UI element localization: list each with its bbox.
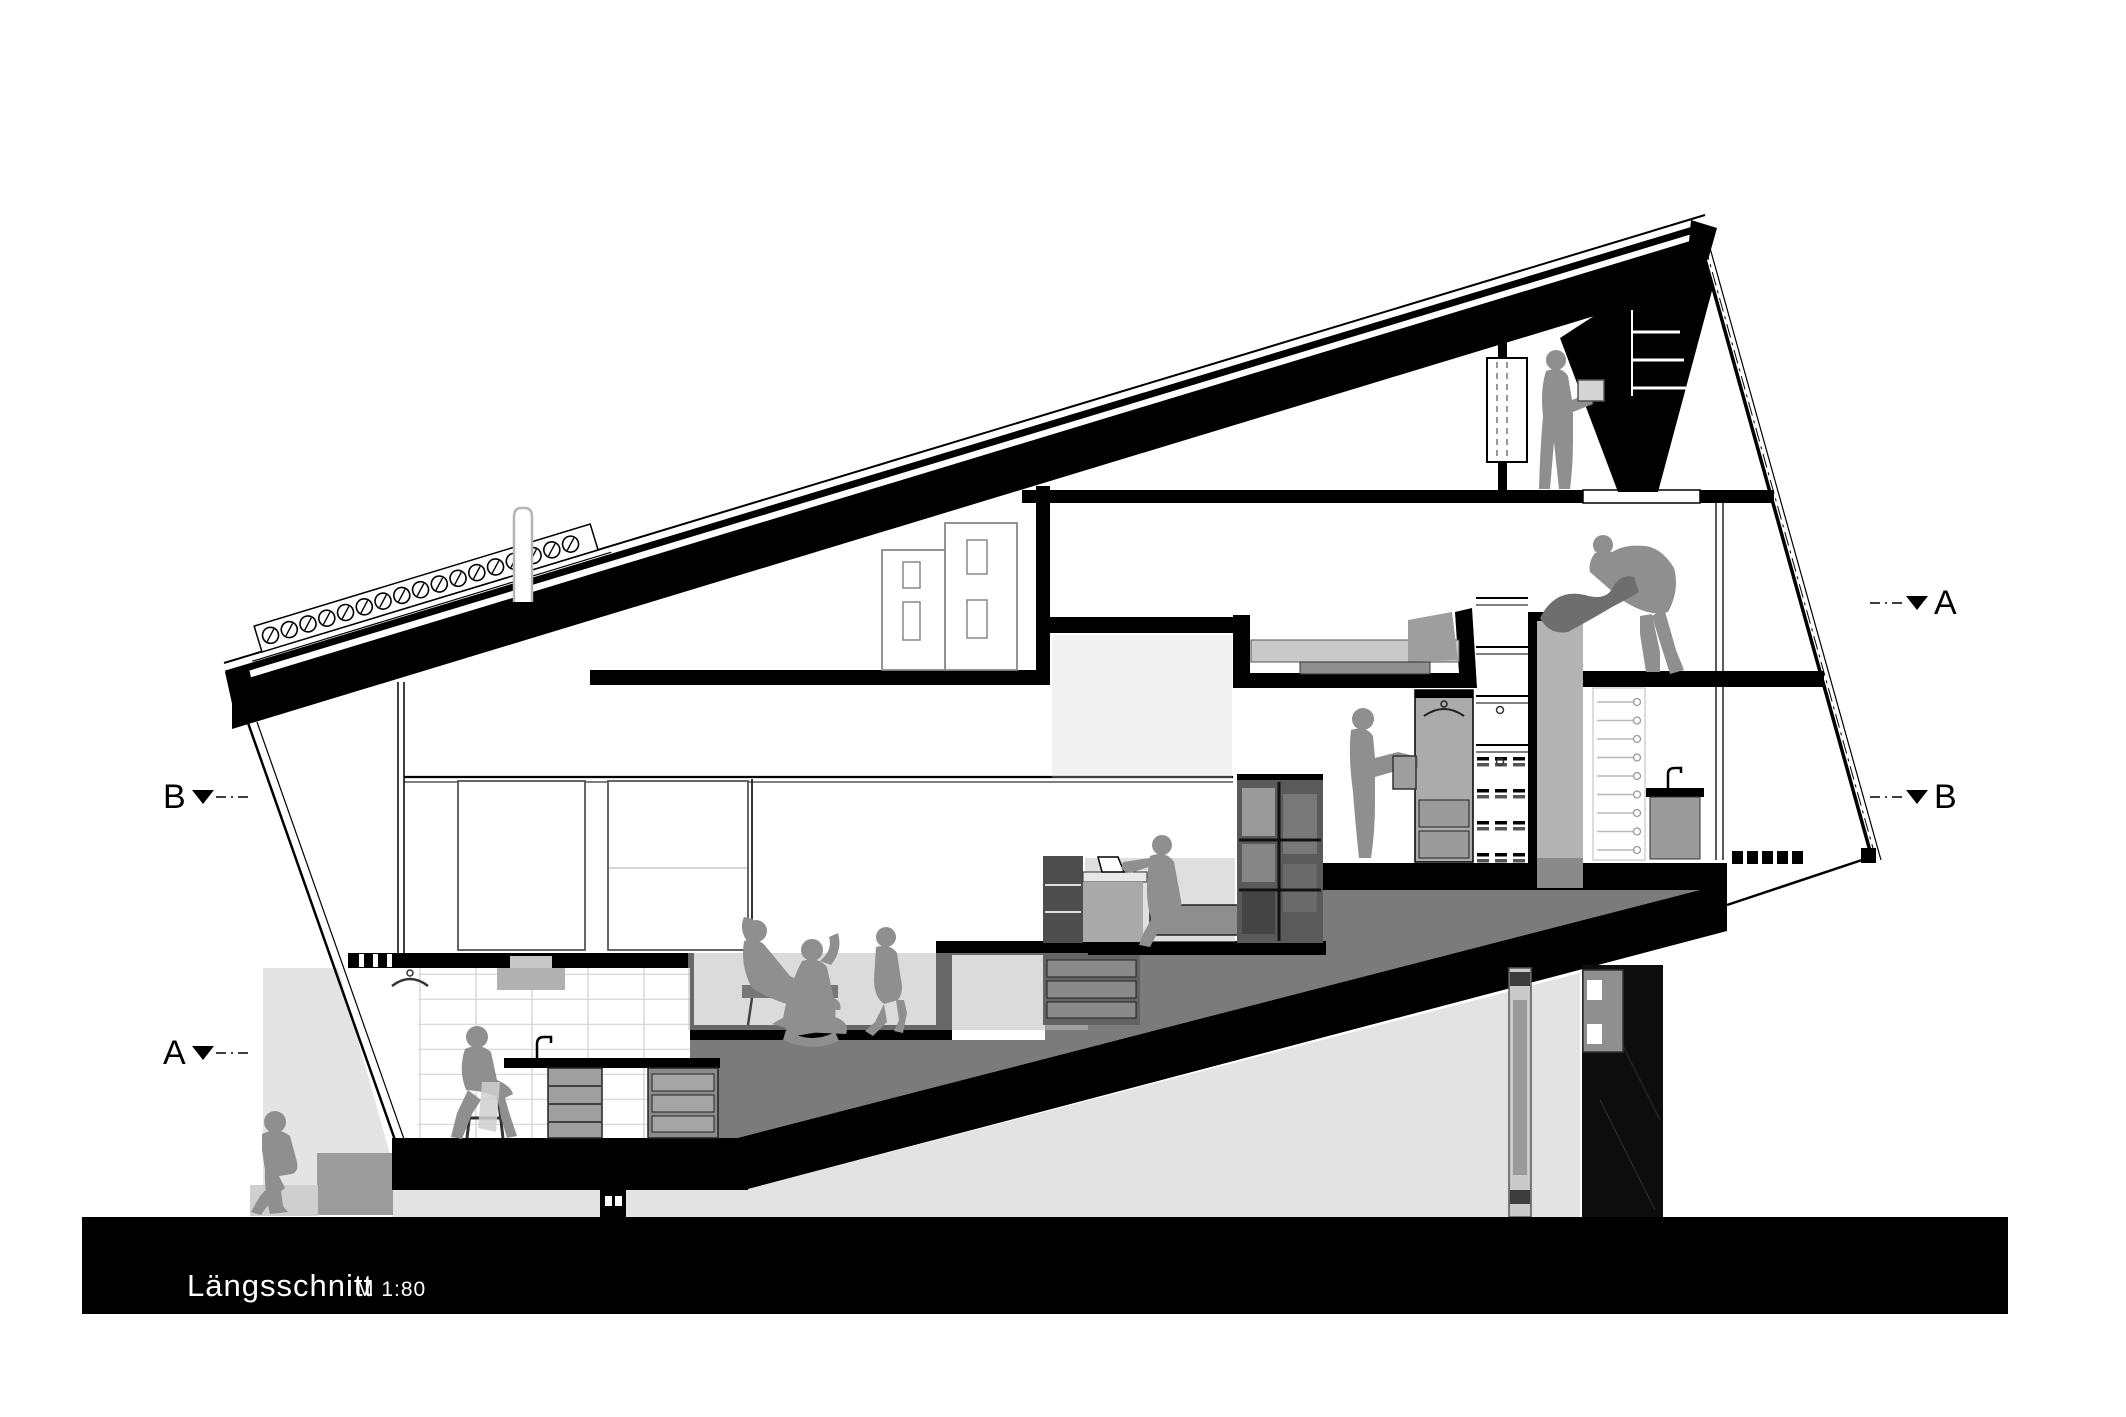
marker-label: A [1934, 584, 1957, 622]
drawer-front [652, 1074, 714, 1091]
interior-post-left [398, 682, 404, 953]
sliding-panel [458, 781, 585, 950]
bed-drawer [1300, 662, 1430, 674]
void-beam [1050, 617, 1233, 633]
marker-arrow-icon [192, 1046, 214, 1060]
kitchen-cabinet-a [548, 1068, 602, 1138]
sliding-panel [608, 781, 748, 950]
drawer-front [1047, 981, 1136, 998]
foundation-pier [600, 1190, 626, 1217]
cabinet-handle [903, 602, 920, 640]
attic-post-lower [1498, 462, 1507, 490]
extractor-hood-top [510, 956, 552, 968]
chimney [514, 508, 532, 602]
bedroom-floor-slab [1548, 671, 1824, 687]
marker-right-a: A [1870, 584, 1957, 622]
wall-shelving-unit [1237, 774, 1323, 943]
desk-shelf-unit [1043, 856, 1083, 943]
marker-label: B [1934, 778, 1957, 816]
void-glass-tint [1052, 635, 1232, 779]
kitchen-base-slab [392, 1138, 748, 1190]
loft-wall [1036, 486, 1050, 685]
closet-base [1537, 858, 1583, 888]
vanity-counter [1646, 788, 1704, 797]
tall-shelf [1593, 688, 1645, 860]
right-facade-dashdot [1705, 246, 1876, 859]
sliding-panels [458, 779, 752, 950]
upper-slab-end-block [1700, 863, 1727, 908]
pier-detail [615, 1196, 622, 1206]
door-glass [1513, 1000, 1527, 1175]
bed-platform [1251, 612, 1459, 674]
outdoor-step-upper [317, 1153, 393, 1215]
vanity-cabinet [1650, 797, 1700, 859]
bed-floor-slab [1233, 673, 1460, 688]
marker-arrow-icon [192, 790, 214, 804]
drawer-front [652, 1116, 714, 1132]
extractor-hood [497, 968, 565, 990]
marker-label: A [163, 1034, 186, 1072]
drawing-scale: M 1:80 [356, 1278, 426, 1301]
figure-person-cross-legged [783, 933, 839, 1047]
bed-backrest [1408, 612, 1458, 662]
hanger-hook-icon [407, 970, 413, 976]
right-glazed-facade-inner [1710, 248, 1881, 860]
kitchen-counter-top [504, 1058, 720, 1068]
kitchen [392, 956, 720, 1138]
door-head [1510, 972, 1530, 986]
door-sill [1510, 1190, 1530, 1204]
pier-detail [605, 1196, 612, 1206]
marker-label: B [163, 778, 186, 816]
cabinet-door [1587, 1024, 1602, 1044]
vanity-faucet-icon [1668, 768, 1681, 788]
wardrobe-drawer [1419, 831, 1469, 858]
slab-end-dashes-left [359, 954, 392, 967]
cabinet-handle [967, 540, 987, 574]
cabinet-door [1587, 980, 1602, 1000]
title-block: Längsschnitt M 1:80 [82, 1217, 2008, 1314]
cabinet-handle [967, 600, 987, 638]
roof-eave-cap [225, 664, 256, 708]
desk-panel [1083, 882, 1143, 942]
stair-treads [1476, 598, 1528, 863]
loft-floor-slab [590, 670, 1050, 685]
attic-floor-slab-right [1700, 490, 1774, 503]
desk-top [1083, 872, 1147, 882]
closet-cut-edge [1528, 612, 1537, 888]
cantilever-soffit-line [1727, 858, 1868, 905]
handrail-dot [1497, 707, 1504, 714]
cabinet-handle [903, 562, 920, 588]
attic-post-upper [1498, 300, 1507, 358]
marker-arrow-icon [1906, 790, 1928, 804]
right-glazed-facade-outer [1701, 245, 1872, 858]
facade-foot-block [1861, 848, 1876, 863]
drawer-front [1047, 960, 1136, 977]
loft-cabinets [882, 523, 1017, 670]
drawing-title: Längsschnitt [187, 1268, 373, 1303]
marker-arrow-icon [1906, 596, 1928, 610]
drawer-front [1047, 1002, 1136, 1018]
bath-zone [1593, 688, 1704, 860]
longitudinal-section-svg: B A A B Längsschnitt M 1:80 [0, 0, 2126, 1417]
marker-right-b: B [1870, 778, 1957, 816]
marker-left-b: B [163, 778, 250, 816]
attic-floor-slab-left [1022, 490, 1583, 503]
marker-left-a: A [163, 1034, 250, 1072]
figure-person-with-box [1350, 708, 1418, 858]
upper-floor-slab [1318, 863, 1727, 890]
drawer-front [652, 1095, 714, 1112]
wardrobe-drawer [1419, 800, 1469, 827]
wardrobe-top [1415, 690, 1473, 698]
upper-slab-end-dashes [1732, 851, 1803, 864]
bed-sheet-blob [1540, 576, 1639, 632]
desk-floor-slab [936, 941, 1326, 955]
section-drawing-page: B A A B Längsschnitt M 1:80 [0, 0, 2126, 1417]
